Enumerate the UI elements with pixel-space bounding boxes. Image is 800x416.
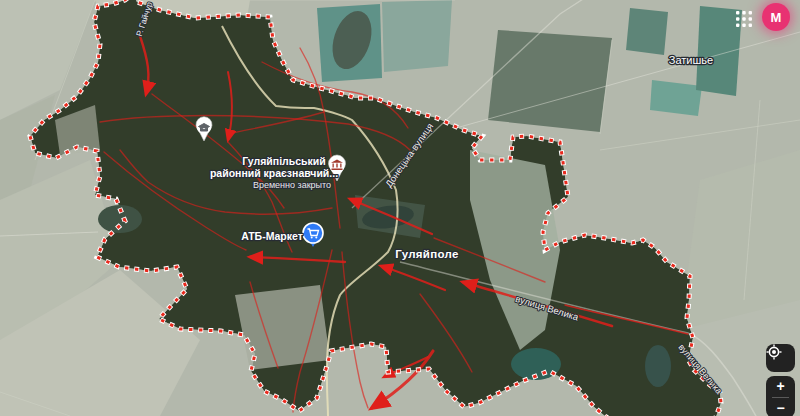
zoom-control: + − xyxy=(766,376,795,416)
apps-grid-icon xyxy=(735,10,753,28)
label-museum-status: Временно закрыто xyxy=(253,180,331,190)
label-museum-line1[interactable]: Гуляйпільський xyxy=(242,155,325,167)
my-location-button[interactable] xyxy=(766,344,795,372)
label-atb-market[interactable]: АТБ-Маркет xyxy=(241,230,303,242)
apps-grid-button[interactable] xyxy=(735,10,753,28)
map-screenshot: Затишье Гуляйполе Гуляйпільський районни… xyxy=(0,0,800,416)
label-zatyshshia: Затишье xyxy=(669,54,713,66)
zoom-out-button[interactable]: − xyxy=(766,398,795,416)
zoom-in-button[interactable]: + xyxy=(766,376,795,397)
map-canvas[interactable]: Затишье Гуляйполе Гуляйпільський районни… xyxy=(0,0,800,416)
my-location-icon xyxy=(766,344,782,360)
account-avatar[interactable]: M xyxy=(762,3,790,31)
label-museum-line2[interactable]: районний краєзнавчий... xyxy=(210,167,338,179)
avatar-initial: M xyxy=(771,10,782,25)
label-city-huliaipole: Гуляйполе xyxy=(395,248,458,260)
